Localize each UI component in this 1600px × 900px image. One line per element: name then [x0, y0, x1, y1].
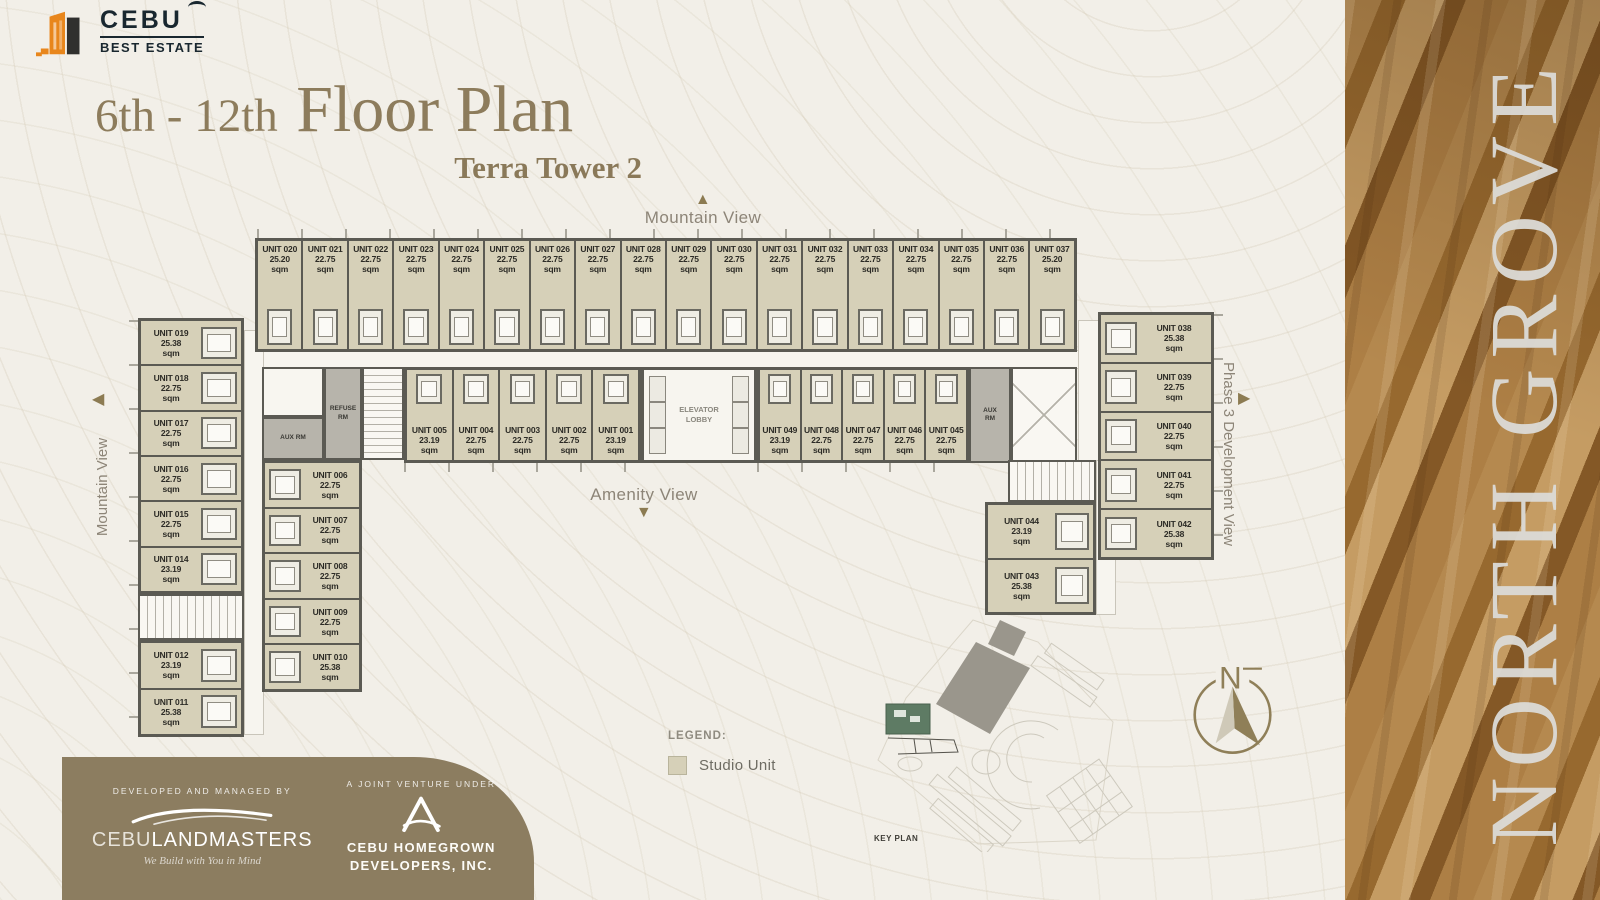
bathroom-pod	[1105, 322, 1137, 356]
unit-area: 22.75	[399, 254, 434, 264]
unit-area-unit: sqm	[598, 445, 633, 455]
unit-id: UNIT 036	[989, 244, 1024, 254]
unit-area-unit: sqm	[762, 264, 797, 274]
unit-id: UNIT 001	[598, 425, 633, 435]
brand-subname: BEST ESTATE	[100, 38, 204, 55]
unit-id: UNIT 015	[141, 509, 201, 519]
unit-area: 25.38	[141, 707, 201, 717]
top-wing: UNIT 020 25.20 sqm UNIT 021 22.75 sqm UN…	[255, 238, 1077, 352]
unit-area-unit: sqm	[626, 264, 661, 274]
inner-wing: UNIT 006 22.75 sqm UNIT 007 22.75 sqm UN…	[262, 460, 362, 692]
unit-area-unit: sqm	[804, 445, 839, 455]
unit-label: UNIT 046 22.75 sqm	[887, 425, 922, 455]
unit-area-unit: sqm	[898, 264, 933, 274]
brand-name: CEBU	[100, 8, 204, 38]
bathroom-pod	[201, 417, 237, 449]
unit-cell: UNIT 040 22.75 sqm	[1101, 411, 1211, 460]
unit-area-unit: sqm	[444, 264, 479, 274]
unit-cell: UNIT 002 22.75 sqm	[545, 370, 592, 460]
unit-label: UNIT 009 22.75 sqm	[301, 607, 359, 637]
unit-label: UNIT 042 25.38 sqm	[1137, 519, 1211, 549]
unit-label: UNIT 012 23.19 sqm	[141, 650, 201, 680]
aux-room-left: AUX RM	[262, 417, 324, 460]
unit-cell: UNIT 037 25.20 sqm	[1028, 241, 1073, 349]
unit-area-unit: sqm	[887, 445, 922, 455]
unit-label: UNIT 011 25.38 sqm	[141, 697, 201, 727]
unit-id: UNIT 040	[1137, 421, 1211, 431]
unit-id: UNIT 030	[717, 244, 752, 254]
bathroom-pod	[201, 508, 237, 540]
developer-name-landmasters: LANDMASTERS	[152, 829, 313, 851]
bathroom-pod	[994, 309, 1019, 345]
aux-room-left-label: AUX RM	[280, 434, 306, 442]
bathroom-pod	[449, 309, 474, 345]
bathroom-pod	[858, 309, 883, 345]
unit-label: UNIT 043 25.38 sqm	[988, 571, 1055, 601]
balcony-ticks-top	[257, 229, 1075, 238]
unit-area-unit: sqm	[552, 445, 587, 455]
unit-area-unit: sqm	[846, 445, 881, 455]
left-wing-upper: UNIT 019 25.38 sqm UNIT 018 22.75 sqm UN…	[138, 318, 244, 594]
unit-cell: UNIT 036 22.75 sqm	[983, 241, 1028, 349]
unit-id: UNIT 032	[808, 244, 843, 254]
unit-cell: UNIT 033 22.75 sqm	[847, 241, 892, 349]
stairwell-right	[1008, 460, 1096, 502]
unit-area-unit: sqm	[944, 264, 979, 274]
unit-area-unit: sqm	[141, 670, 201, 680]
refuse-room-label: REFUSE RM	[330, 405, 356, 421]
phase3-right-arrow-icon: ▶	[1238, 391, 1250, 407]
unit-id: UNIT 020	[262, 244, 297, 254]
unit-area: 22.75	[141, 474, 201, 484]
unit-area: 22.75	[1137, 480, 1211, 490]
bathroom-pod	[585, 309, 610, 345]
title-line: 6th - 12th Floor Plan	[95, 72, 660, 148]
developed-by-label: DEVELOPED AND MANAGED BY	[113, 786, 292, 796]
bathroom-pod	[935, 374, 958, 404]
unit-area-unit: sqm	[762, 445, 797, 455]
bathroom-pod	[358, 309, 383, 345]
unit-id: UNIT 014	[141, 554, 201, 564]
unit-id: UNIT 035	[944, 244, 979, 254]
elevator-lobby: ELEVATOR LOBBY	[641, 367, 757, 463]
unit-id: UNIT 009	[301, 607, 359, 617]
unit-area-unit: sqm	[929, 445, 964, 455]
bathroom-pod	[631, 309, 656, 345]
unit-area-unit: sqm	[988, 536, 1055, 546]
unit-cell: UNIT 005 23.19 sqm	[407, 370, 452, 460]
unit-area: 22.75	[1137, 431, 1211, 441]
page-title: 6th - 12th Floor Plan Terra Tower 2	[95, 72, 660, 186]
unit-id: UNIT 025	[490, 244, 525, 254]
key-plan-label: KEY PLAN	[874, 834, 918, 843]
unit-label: UNIT 023 22.75 sqm	[399, 244, 434, 274]
unit-cell: UNIT 017 22.75 sqm	[141, 410, 241, 455]
unit-id: UNIT 002	[552, 425, 587, 435]
unit-area: 22.75	[671, 254, 706, 264]
bathroom-pod	[540, 309, 565, 345]
unit-area-unit: sqm	[1137, 343, 1211, 353]
unit-id: UNIT 047	[846, 425, 881, 435]
unit-area-unit: sqm	[459, 445, 494, 455]
unit-id: UNIT 042	[1137, 519, 1211, 529]
unit-cell: UNIT 039 22.75 sqm	[1101, 362, 1211, 411]
unit-cell: UNIT 046 22.75 sqm	[883, 370, 925, 460]
unit-label: UNIT 033 22.75 sqm	[853, 244, 888, 274]
unit-cell: UNIT 020 25.20 sqm	[258, 241, 301, 349]
bathroom-pod	[1105, 370, 1137, 404]
unit-area-unit: sqm	[141, 348, 201, 358]
unit-area-unit: sqm	[989, 264, 1024, 274]
unit-label: UNIT 010 25.38 sqm	[301, 652, 359, 682]
unit-area: 23.19	[598, 435, 633, 445]
stairwell-inner	[362, 367, 404, 460]
unit-id: UNIT 028	[626, 244, 661, 254]
unit-label: UNIT 031 22.75 sqm	[762, 244, 797, 274]
bathroom-pod	[1055, 513, 1089, 550]
developer-tagline: We Build with You in Mind	[144, 855, 261, 867]
brand-building-icon	[36, 8, 94, 60]
jv-label: A JOINT VENTURE UNDER	[347, 779, 497, 789]
unit-area-unit: sqm	[308, 264, 343, 274]
unit-area: 22.75	[1137, 382, 1211, 392]
unit-label: UNIT 003 22.75 sqm	[505, 425, 540, 455]
unit-area: 25.20	[262, 254, 297, 264]
aux-room-right: AUX RM	[969, 367, 1011, 463]
unit-area: 22.75	[444, 254, 479, 264]
unit-area: 22.75	[808, 254, 843, 264]
unit-id: UNIT 045	[929, 425, 964, 435]
unit-area-unit: sqm	[988, 591, 1055, 601]
unit-area: 25.38	[1137, 333, 1211, 343]
unit-cell: UNIT 018 22.75 sqm	[141, 364, 241, 409]
unit-area: 22.75	[929, 435, 964, 445]
unit-id: UNIT 029	[671, 244, 706, 254]
bathroom-pod	[403, 309, 428, 345]
unit-label: UNIT 022 22.75 sqm	[353, 244, 388, 274]
mid-wing-left: UNIT 005 23.19 sqm UNIT 004 22.75 sqm UN…	[404, 367, 641, 463]
unit-id: UNIT 019	[141, 328, 201, 338]
bathroom-pod	[603, 374, 629, 404]
view-label-top-text: Mountain View	[598, 208, 808, 228]
unit-cell: UNIT 012 23.19 sqm	[141, 643, 241, 688]
bathroom-pod	[416, 374, 442, 404]
landmasters-swoosh-icon	[117, 801, 287, 825]
unit-cell: UNIT 049 23.19 sqm	[760, 370, 800, 460]
bathroom-pod	[267, 309, 292, 345]
unit-cell: UNIT 004 22.75 sqm	[452, 370, 499, 460]
unit-id: UNIT 003	[505, 425, 540, 435]
unit-cell: UNIT 043 25.38 sqm	[988, 558, 1093, 613]
brand-text: CEBU BEST ESTATE	[100, 8, 204, 55]
bathroom-pod	[812, 309, 837, 345]
unit-cell: UNIT 031 22.75 sqm	[756, 241, 801, 349]
unit-cell: UNIT 010 25.38 sqm	[265, 643, 359, 689]
unit-area: 25.38	[988, 581, 1055, 591]
unit-label: UNIT 004 22.75 sqm	[459, 425, 494, 455]
unit-label: UNIT 008 22.75 sqm	[301, 561, 359, 591]
unit-cell: UNIT 007 22.75 sqm	[265, 507, 359, 553]
unit-area-unit: sqm	[301, 672, 359, 682]
unit-area-unit: sqm	[1137, 490, 1211, 500]
unit-area: 22.75	[535, 254, 570, 264]
bathroom-pod	[767, 309, 792, 345]
unit-area: 22.75	[762, 254, 797, 264]
unit-id: UNIT 039	[1137, 372, 1211, 382]
jv-name: CEBU HOMEGROWN DEVELOPERS, INC.	[347, 839, 496, 874]
unit-area: 22.75	[301, 525, 359, 535]
unit-id: UNIT 006	[301, 470, 359, 480]
unit-cell: UNIT 023 22.75 sqm	[392, 241, 437, 349]
unit-id: UNIT 026	[535, 244, 570, 254]
unit-label: UNIT 021 22.75 sqm	[308, 244, 343, 274]
view-label-bottom-text: Amenity View	[539, 485, 749, 505]
unit-area: 23.19	[988, 526, 1055, 536]
bathroom-pod	[676, 309, 701, 345]
unit-area: 23.19	[762, 435, 797, 445]
title-subtitle: Terra Tower 2	[95, 150, 660, 186]
unit-area: 22.75	[580, 254, 615, 264]
unit-cell: UNIT 014 23.19 sqm	[141, 546, 241, 591]
unit-area: 22.75	[898, 254, 933, 264]
unit-cell: UNIT 016 22.75 sqm	[141, 455, 241, 500]
unit-area: 22.75	[141, 428, 201, 438]
compass: N	[1180, 655, 1285, 765]
brand-arc-icon	[188, 1, 206, 14]
unit-id: UNIT 038	[1137, 323, 1211, 333]
unit-area: 22.75	[804, 435, 839, 445]
unit-cell: UNIT 042 25.38 sqm	[1101, 508, 1211, 557]
bathroom-pod	[201, 327, 237, 359]
unit-label: UNIT 019 25.38 sqm	[141, 328, 201, 358]
unit-id: UNIT 049	[762, 425, 797, 435]
unit-label: UNIT 027 22.75 sqm	[580, 244, 615, 274]
balcony-ticks-mid-left	[404, 463, 641, 472]
unit-area: 25.20	[1035, 254, 1070, 264]
view-label-left: Mountain View	[94, 407, 114, 567]
left-wing-lower: UNIT 012 23.19 sqm UNIT 011 25.38 sqm	[138, 640, 244, 737]
unit-cell: UNIT 030 22.75 sqm	[710, 241, 755, 349]
unit-area-unit: sqm	[141, 574, 201, 584]
unit-area: 22.75	[626, 254, 661, 264]
right-wing: UNIT 038 25.38 sqm UNIT 039 22.75 sqm UN…	[1098, 312, 1214, 560]
unit-id: UNIT 027	[580, 244, 615, 254]
unit-cell: UNIT 008 22.75 sqm	[265, 552, 359, 598]
unit-area-unit: sqm	[1035, 264, 1070, 274]
elevator-lobby-label: ELEVATOR LOBBY	[644, 370, 754, 460]
unit-cell: UNIT 009 22.75 sqm	[265, 598, 359, 644]
unit-label: UNIT 036 22.75 sqm	[989, 244, 1024, 274]
compass-north-label: N	[1219, 660, 1242, 696]
unit-label: UNIT 002 22.75 sqm	[552, 425, 587, 455]
unit-area-unit: sqm	[141, 393, 201, 403]
unit-area-unit: sqm	[412, 445, 447, 455]
legend-item: Studio Unit	[668, 756, 776, 775]
unit-area-unit: sqm	[1137, 539, 1211, 549]
legend-swatch	[668, 756, 687, 775]
unit-id: UNIT 021	[308, 244, 343, 254]
unit-cell: UNIT 034 22.75 sqm	[892, 241, 937, 349]
unit-label: UNIT 016 22.75 sqm	[141, 464, 201, 494]
bathroom-pod	[510, 374, 536, 404]
key-plan-map	[858, 612, 1158, 852]
unit-label: UNIT 001 23.19 sqm	[598, 425, 633, 455]
unit-id: UNIT 037	[1035, 244, 1070, 254]
bathroom-pod	[269, 651, 301, 682]
unit-area-unit: sqm	[262, 264, 297, 274]
unit-area: 22.75	[353, 254, 388, 264]
unit-cell: UNIT 041 22.75 sqm	[1101, 459, 1211, 508]
unit-area: 23.19	[141, 660, 201, 670]
legend-heading: LEGEND:	[668, 730, 776, 742]
unit-cell: UNIT 001 23.19 sqm	[591, 370, 638, 460]
unit-cell: UNIT 022 22.75 sqm	[347, 241, 392, 349]
unit-area-unit: sqm	[399, 264, 434, 274]
unit-id: UNIT 031	[762, 244, 797, 254]
title-main: Floor Plan	[296, 73, 573, 146]
unit-area: 22.75	[846, 435, 881, 445]
bathroom-pod	[269, 469, 301, 500]
unit-area-unit: sqm	[301, 490, 359, 500]
unit-area-unit: sqm	[141, 717, 201, 727]
bathroom-pod	[949, 309, 974, 345]
bathroom-pod	[201, 553, 237, 585]
unit-area: 22.75	[301, 480, 359, 490]
unit-cell: UNIT 006 22.75 sqm	[265, 463, 359, 507]
unit-area: 22.75	[944, 254, 979, 264]
bathroom-pod	[1105, 419, 1137, 453]
unit-id: UNIT 033	[853, 244, 888, 254]
unit-area: 22.75	[141, 519, 201, 529]
bathroom-pod	[463, 374, 489, 404]
unit-cell: UNIT 048 22.75 sqm	[800, 370, 842, 460]
unit-id: UNIT 012	[141, 650, 201, 660]
jv-logo-icon	[398, 794, 444, 834]
unit-area-unit: sqm	[141, 438, 201, 448]
bathroom-pod	[201, 372, 237, 404]
unit-id: UNIT 005	[412, 425, 447, 435]
service-area	[262, 367, 324, 417]
unit-area: 22.75	[301, 571, 359, 581]
unit-area-unit: sqm	[580, 264, 615, 274]
unit-id: UNIT 004	[459, 425, 494, 435]
unit-area-unit: sqm	[301, 535, 359, 545]
bathroom-pod	[810, 374, 833, 404]
page: NORTH GROVE CEBU BEST ESTATE 6th - 12th …	[0, 0, 1600, 900]
bathroom-pod	[269, 606, 301, 637]
unit-area-unit: sqm	[505, 445, 540, 455]
developer-name-cebu: CEBU	[92, 829, 152, 851]
bathroom-pod	[1105, 517, 1137, 551]
brand-logo: CEBU BEST ESTATE	[36, 8, 204, 60]
bathroom-pod	[1055, 567, 1089, 604]
developer-name: CEBULANDMASTERS	[92, 830, 313, 850]
unit-label: UNIT 028 22.75 sqm	[626, 244, 661, 274]
unit-area-unit: sqm	[853, 264, 888, 274]
unit-label: UNIT 025 22.75 sqm	[490, 244, 525, 274]
unit-cell: UNIT 044 23.19 sqm	[988, 505, 1093, 558]
unit-label: UNIT 029 22.75 sqm	[671, 244, 706, 274]
bathroom-pod	[852, 374, 875, 404]
unit-id: UNIT 041	[1137, 470, 1211, 480]
unit-area-unit: sqm	[535, 264, 570, 274]
unit-id: UNIT 018	[141, 373, 201, 383]
unit-label: UNIT 048 22.75 sqm	[804, 425, 839, 455]
unit-area: 22.75	[887, 435, 922, 445]
bathroom-pod	[201, 463, 237, 495]
unit-cell: UNIT 024 22.75 sqm	[438, 241, 483, 349]
legend-label: Studio Unit	[699, 757, 776, 774]
refuse-room: REFUSE RM	[324, 367, 362, 460]
unit-cell: UNIT 047 22.75 sqm	[841, 370, 883, 460]
unit-area-unit: sqm	[1137, 392, 1211, 402]
unit-cell: UNIT 019 25.38 sqm	[141, 321, 241, 364]
bathroom-pod	[313, 309, 338, 345]
balcony-ticks-mid-right	[757, 463, 969, 472]
unit-label: UNIT 030 22.75 sqm	[717, 244, 752, 274]
unit-id: UNIT 044	[988, 516, 1055, 526]
unit-area: 25.38	[1137, 529, 1211, 539]
unit-id: UNIT 011	[141, 697, 201, 707]
unit-area-unit: sqm	[1137, 441, 1211, 451]
developer-section: DEVELOPED AND MANAGED BY CEBULANDMASTERS…	[92, 786, 313, 867]
legend: LEGEND: Studio Unit	[668, 730, 776, 775]
unit-cell: UNIT 028 22.75 sqm	[620, 241, 665, 349]
unit-label: UNIT 040 22.75 sqm	[1137, 421, 1211, 451]
unit-area: 22.75	[301, 617, 359, 627]
unit-area: 22.75	[552, 435, 587, 445]
unit-area: 22.75	[459, 435, 494, 445]
unit-area-unit: sqm	[141, 484, 201, 494]
bathroom-pod	[1040, 309, 1065, 345]
unit-id: UNIT 024	[444, 244, 479, 254]
bathroom-pod	[903, 309, 928, 345]
unit-area-unit: sqm	[301, 627, 359, 637]
mid-wing-right: UNIT 049 23.19 sqm UNIT 048 22.75 sqm UN…	[757, 367, 969, 463]
unit-cell: UNIT 026 22.75 sqm	[529, 241, 574, 349]
unit-label: UNIT 037 25.20 sqm	[1035, 244, 1070, 274]
unit-cell: UNIT 038 25.38 sqm	[1101, 315, 1211, 362]
unit-area: 25.38	[141, 338, 201, 348]
title-prefix: 6th - 12th	[95, 90, 278, 142]
unit-label: UNIT 038 25.38 sqm	[1137, 323, 1211, 353]
unit-area-unit: sqm	[671, 264, 706, 274]
view-label-bottom: Amenity View ▼	[539, 485, 749, 521]
unit-cell: UNIT 021 22.75 sqm	[301, 241, 346, 349]
unit-area-unit: sqm	[301, 581, 359, 591]
unit-area: 22.75	[717, 254, 752, 264]
unit-area: 22.75	[989, 254, 1024, 264]
bathroom-pod	[768, 374, 791, 404]
unit-area: 22.75	[308, 254, 343, 264]
bathroom-pod	[893, 374, 916, 404]
unit-area: 22.75	[505, 435, 540, 445]
unit-label: UNIT 005 23.19 sqm	[412, 425, 447, 455]
unit-id: UNIT 022	[353, 244, 388, 254]
developer-banner: DEVELOPED AND MANAGED BY CEBULANDMASTERS…	[62, 757, 534, 900]
mountain-view-up-arrow-icon: ▲	[598, 192, 808, 208]
view-label-top: ▲ Mountain View	[598, 192, 808, 228]
amenity-view-down-arrow-icon: ▼	[539, 505, 749, 521]
unit-area: 23.19	[141, 564, 201, 574]
unit-id: UNIT 016	[141, 464, 201, 474]
unit-id: UNIT 017	[141, 418, 201, 428]
unit-cell: UNIT 027 22.75 sqm	[574, 241, 619, 349]
jv-section: A JOINT VENTURE UNDER CEBU HOMEGROWN DEV…	[347, 779, 497, 874]
unit-label: UNIT 015 22.75 sqm	[141, 509, 201, 539]
compass-icon: N	[1180, 655, 1285, 760]
unit-id: UNIT 010	[301, 652, 359, 662]
